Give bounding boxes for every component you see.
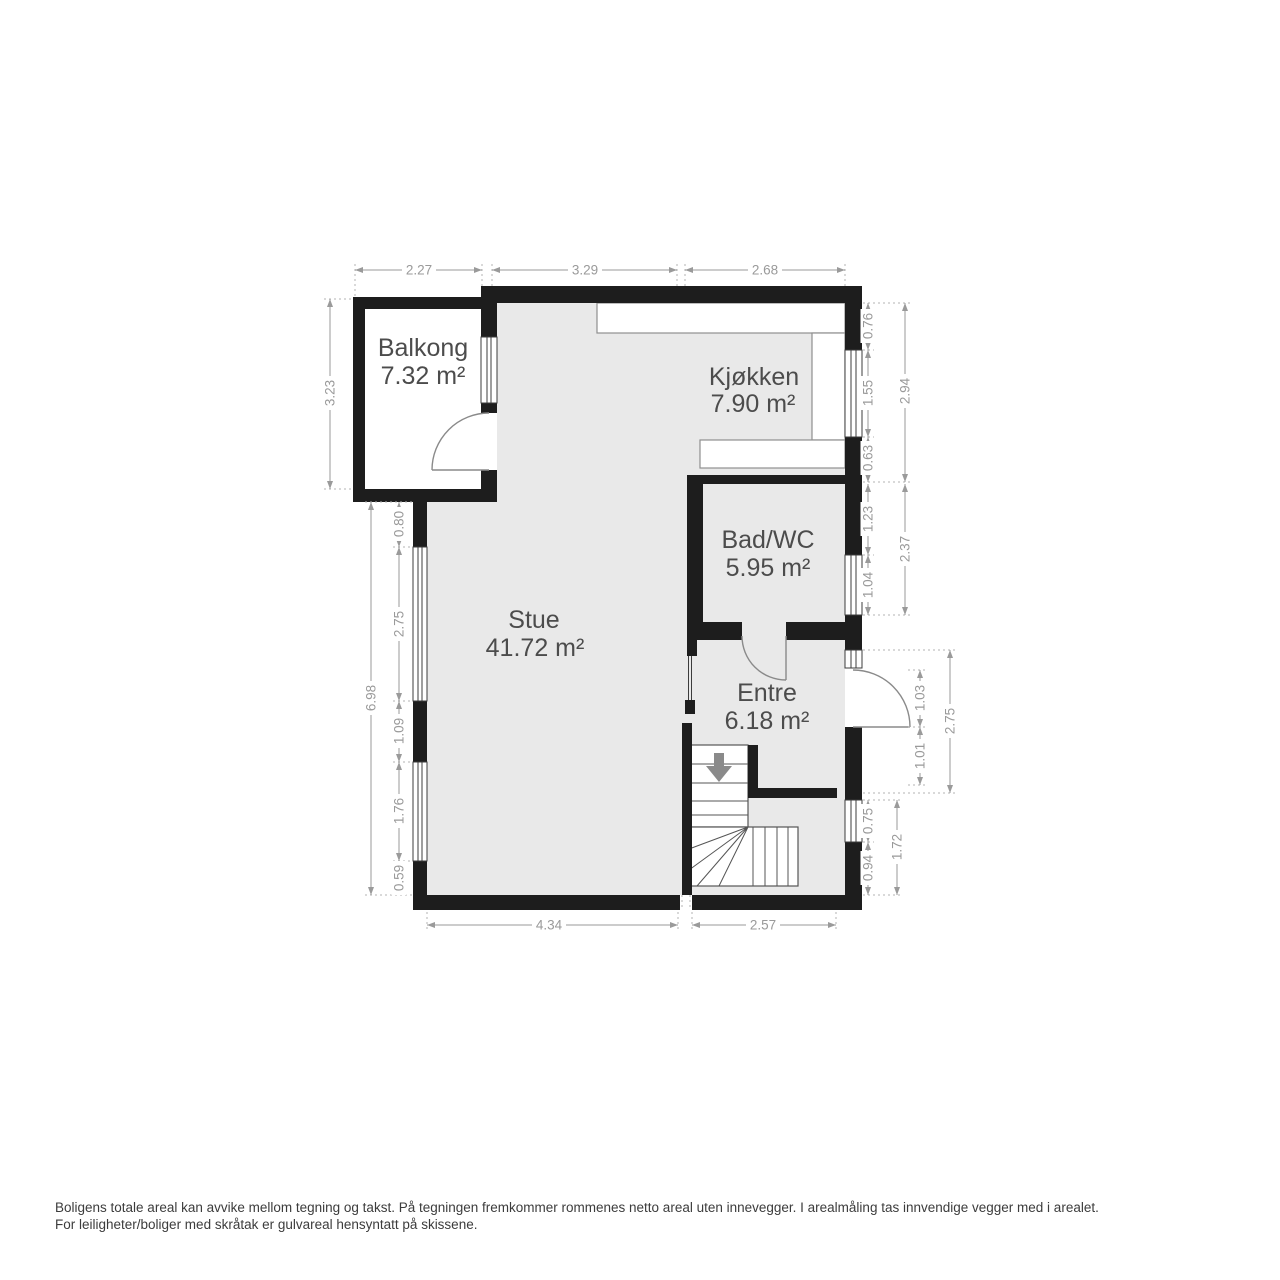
room-area-stue: 41.72 m² xyxy=(486,634,585,662)
dim-right-bottom-1: 0.75 xyxy=(861,804,876,838)
floor-plan-page: Balkong 7.32 m² Kjøkken 7.90 m² Bad/WC 5… xyxy=(0,0,1280,1280)
room-area-entre: 6.18 m² xyxy=(725,707,810,735)
dim-right-kitchen-3: 0.63 xyxy=(861,441,876,475)
dim-top-2: 3.29 xyxy=(568,263,602,279)
wall-east-b xyxy=(845,437,862,555)
wall-east-d xyxy=(845,727,862,800)
svg-text:3.29: 3.29 xyxy=(572,263,598,278)
balcony-wall-left xyxy=(353,297,365,502)
dim-left-4: 1.76 xyxy=(392,794,407,828)
kitchen-counter-right xyxy=(812,333,845,440)
stue-entre-stub xyxy=(685,700,695,714)
dim-bottom-2: 2.57 xyxy=(746,918,780,934)
svg-text:1.01: 1.01 xyxy=(913,743,928,769)
dim-left-3: 1.09 xyxy=(392,714,407,748)
wall-bottom-left xyxy=(413,895,680,910)
svg-text:6.98: 6.98 xyxy=(364,685,379,711)
entre-l-wall-horizontal xyxy=(748,788,837,798)
disclaimer-line-2: For leiligheter/boliger med skråtak er g… xyxy=(55,1216,1175,1233)
disclaimer-line-1: Boligens totale areal kan avvike mellom … xyxy=(55,1199,1175,1216)
svg-text:3.23: 3.23 xyxy=(323,380,338,406)
dim-top-3: 2.68 xyxy=(748,263,782,279)
dim-right-door-1: 1.03 xyxy=(913,681,928,715)
dim-right-kitchen-total: 2.94 xyxy=(898,374,913,408)
dim-right-kitchen-1: 0.76 xyxy=(861,309,876,343)
entre-small-window xyxy=(845,800,862,842)
svg-text:1.03: 1.03 xyxy=(913,685,928,711)
dim-right-bottom-total: 1.72 xyxy=(890,830,905,864)
stue-window-2 xyxy=(413,762,427,861)
bath-wall-left xyxy=(687,475,703,640)
dim-right-kitchen-2: 1.55 xyxy=(861,376,876,410)
svg-text:0.59: 0.59 xyxy=(392,865,407,891)
dim-right-bath-total: 2.37 xyxy=(898,532,913,566)
dim-top-1: 2.27 xyxy=(402,263,436,279)
stue-window-1 xyxy=(413,547,427,701)
disclaimer-footer: Boligens totale areal kan avvike mellom … xyxy=(55,1199,1175,1233)
svg-text:0.63: 0.63 xyxy=(861,445,876,471)
dim-right-door-total: 2.75 xyxy=(943,704,958,738)
entre-sidelight-window xyxy=(845,650,862,668)
room-area-balkong: 7.32 m² xyxy=(381,362,466,390)
kitchen-window xyxy=(845,350,862,437)
svg-text:1.04: 1.04 xyxy=(861,571,876,598)
room-area-bad-wc: 5.95 m² xyxy=(726,554,811,582)
stair-threshold xyxy=(682,895,690,910)
svg-text:2.57: 2.57 xyxy=(750,918,776,933)
dim-right-bath-2: 1.04 xyxy=(861,568,876,602)
balcony-window xyxy=(481,337,497,403)
bath-wall-top xyxy=(687,475,845,484)
svg-text:0.94: 0.94 xyxy=(861,854,876,881)
svg-text:0.80: 0.80 xyxy=(392,511,407,537)
dim-left-1: 0.80 xyxy=(392,507,407,541)
room-label-balkong: Balkong xyxy=(378,334,468,362)
svg-text:1.76: 1.76 xyxy=(392,798,407,824)
balcony-wall-bottom xyxy=(353,489,497,502)
bath-wall-bottom-right xyxy=(786,622,845,640)
dim-left-5: 0.59 xyxy=(392,861,407,895)
svg-text:1.72: 1.72 xyxy=(890,834,905,860)
svg-text:1.09: 1.09 xyxy=(392,718,407,744)
room-area-kjokken: 7.90 m² xyxy=(711,390,796,418)
bath-wall-bottom-left xyxy=(687,622,742,640)
room-label-bad-wc: Bad/WC xyxy=(721,526,814,554)
wall-west-upper-c xyxy=(481,470,497,489)
bath-window xyxy=(845,555,862,615)
room-label-stue: Stue xyxy=(508,606,559,634)
kitchen-counter-top xyxy=(597,303,845,333)
kitchen-counter-bottom xyxy=(700,440,845,468)
dim-balcony-height: 3.23 xyxy=(323,376,338,410)
svg-text:2.75: 2.75 xyxy=(943,708,958,734)
wall-east-a xyxy=(845,303,862,350)
wall-west-upper-b xyxy=(481,403,497,413)
room-label-kjokken: Kjøkken xyxy=(709,363,799,391)
dim-right-bath-1: 1.23 xyxy=(861,502,876,536)
stue-entre-wall xyxy=(687,640,697,656)
entrance-door xyxy=(853,670,910,727)
wall-west-lower-a xyxy=(413,502,427,547)
dim-right-door-2: 1.01 xyxy=(913,739,928,773)
svg-text:4.34: 4.34 xyxy=(536,918,563,933)
svg-text:2.94: 2.94 xyxy=(898,377,913,404)
dim-left-total: 6.98 xyxy=(364,681,379,715)
floor-plan-drawing: Balkong 7.32 m² Kjøkken 7.90 m² Bad/WC 5… xyxy=(0,0,1280,1280)
wall-west-lower-c xyxy=(413,861,427,895)
dim-left-2: 2.75 xyxy=(392,607,407,641)
wall-top xyxy=(481,286,862,303)
wall-east-c xyxy=(845,615,862,650)
wall-west-lower-b xyxy=(413,701,427,762)
room-label-entre: Entre xyxy=(737,679,797,707)
svg-text:0.76: 0.76 xyxy=(861,313,876,339)
svg-text:2.37: 2.37 xyxy=(898,536,913,562)
stair-west-wall xyxy=(682,723,692,895)
svg-text:0.75: 0.75 xyxy=(861,808,876,834)
dim-right-bottom-2: 0.94 xyxy=(861,851,876,885)
balcony-wall-top xyxy=(353,297,497,309)
wall-bottom-right xyxy=(692,895,862,910)
svg-text:1.23: 1.23 xyxy=(861,506,876,532)
svg-text:2.68: 2.68 xyxy=(752,263,778,278)
dim-bottom-1: 4.34 xyxy=(532,918,566,934)
svg-text:2.75: 2.75 xyxy=(392,611,407,637)
svg-text:1.55: 1.55 xyxy=(861,380,876,406)
svg-text:2.27: 2.27 xyxy=(406,263,432,278)
